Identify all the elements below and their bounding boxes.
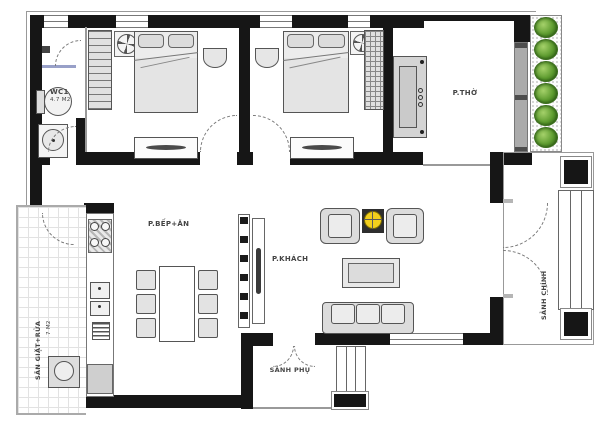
shelf-block — [240, 236, 248, 243]
bedside-table — [255, 48, 279, 68]
room-label-living: P.KHÁCH — [272, 255, 308, 263]
wall — [514, 28, 530, 42]
room-label-laundry: SÂN GIẶT+RỬA — [34, 250, 42, 380]
kitchen-sink-icon — [90, 282, 110, 299]
burner — [101, 222, 110, 231]
plant-icon — [534, 83, 558, 104]
altar-inner — [399, 66, 417, 128]
shelf-block — [240, 293, 248, 300]
drain-dot — [98, 305, 101, 308]
plant-icon — [534, 61, 558, 82]
burner — [101, 238, 110, 247]
armchair-cushion — [328, 214, 352, 238]
sofa-cushion — [331, 304, 355, 324]
partition-wall — [85, 27, 87, 152]
dining-chair — [198, 270, 218, 290]
room-area-laundry: 7 M2 — [46, 295, 52, 335]
door-arc — [253, 115, 290, 152]
door-arc — [55, 40, 81, 66]
kitchen-sink-icon — [90, 301, 110, 316]
outline-line — [253, 407, 369, 409]
altar-dot — [420, 130, 424, 134]
sofa-cushion — [381, 304, 405, 324]
wardrobe — [88, 30, 112, 110]
window — [390, 333, 463, 345]
wall — [30, 15, 42, 215]
door-arc — [200, 115, 237, 152]
wall — [315, 333, 390, 345]
dining-chair — [136, 270, 156, 290]
side-table-cross — [372, 211, 373, 229]
window — [260, 15, 292, 28]
altar-circle — [418, 95, 423, 100]
door-arc — [294, 346, 315, 367]
tv-icon — [146, 145, 186, 150]
room-label-wc: WC1 — [50, 88, 69, 96]
steps — [336, 346, 366, 394]
plant-icon — [534, 17, 558, 38]
tv-icon — [256, 248, 261, 294]
wall — [239, 27, 250, 152]
bedside-table — [203, 48, 227, 68]
column — [334, 394, 366, 407]
side-table-cross — [364, 219, 382, 220]
wall — [490, 165, 503, 203]
dining-chair — [136, 318, 156, 338]
wall — [84, 203, 114, 213]
side-table-top — [364, 211, 382, 229]
wall — [383, 27, 393, 152]
altar-circle — [418, 88, 423, 93]
altar-circle — [418, 102, 423, 107]
drain-dot — [98, 287, 101, 290]
steps — [558, 190, 594, 310]
room-label-worship: P.THỜ — [430, 89, 500, 97]
dish-rack-icon — [92, 322, 110, 340]
dining-chair — [198, 318, 218, 338]
column — [564, 312, 588, 336]
wall-recess — [424, 21, 514, 28]
fridge — [87, 364, 113, 394]
wardrobe — [364, 30, 384, 110]
sofa-cushion — [356, 304, 380, 324]
room-area-wc: 4.7 M2 — [50, 97, 71, 103]
shelf-block — [240, 312, 248, 319]
altar-dot — [420, 60, 424, 64]
window — [116, 15, 148, 28]
pillow — [318, 34, 345, 48]
pillow — [168, 34, 194, 48]
exterior-outline — [26, 11, 536, 12]
floor-plan: WC1 4.7 M2 P.THỜ P.BẾP+ĂN — [0, 0, 616, 436]
plant-icon — [534, 39, 558, 60]
dining-table — [159, 266, 195, 342]
window — [44, 15, 68, 28]
burner — [90, 222, 99, 231]
room-label-kitchen: P.BẾP+ĂN — [148, 220, 189, 228]
window — [348, 15, 370, 28]
washing-machine-drum — [54, 361, 74, 381]
dining-chair — [136, 294, 156, 314]
coffee-table-inner — [348, 263, 394, 283]
opening-line — [423, 164, 490, 166]
plant-icon — [534, 105, 558, 126]
shelf-block — [240, 255, 248, 262]
door-arc — [273, 346, 294, 367]
burner — [90, 238, 99, 247]
plant-icon — [534, 127, 558, 148]
wall — [292, 15, 348, 28]
wall — [463, 333, 503, 345]
shelf-block — [240, 274, 248, 281]
pillow — [138, 34, 164, 48]
exterior-outline — [26, 11, 27, 217]
window — [514, 42, 528, 152]
pillow — [287, 34, 314, 48]
column — [564, 160, 588, 184]
shower-head-icon — [42, 46, 50, 53]
armchair-cushion — [393, 214, 417, 238]
wall — [237, 152, 253, 165]
shelf-block — [240, 217, 248, 224]
dining-chair — [198, 294, 218, 314]
wall — [68, 15, 116, 28]
room-label-side-hall: SẢNH PHỤ — [258, 366, 322, 374]
divider-shelf — [238, 214, 250, 328]
tv-icon — [302, 145, 342, 150]
